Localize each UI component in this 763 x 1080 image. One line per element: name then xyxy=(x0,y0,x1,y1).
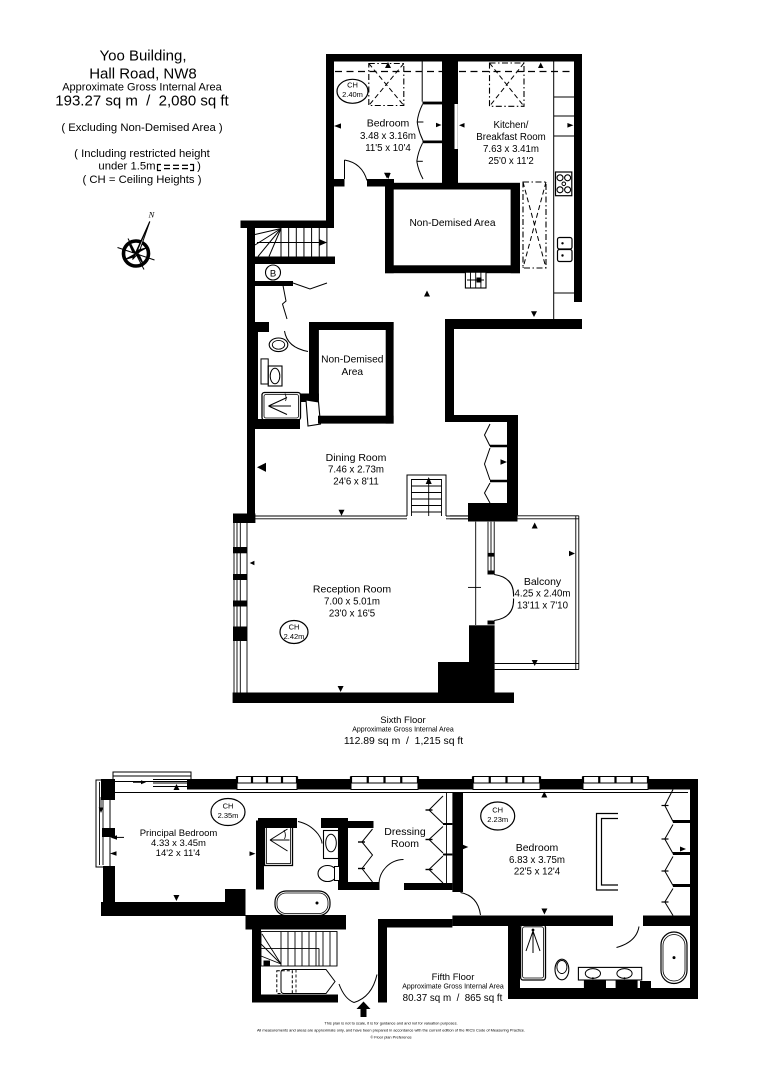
svg-text:3.48 x 3.16m: 3.48 x 3.16m xyxy=(360,131,416,142)
svg-text:4.25 x 2.40m: 4.25 x 2.40m xyxy=(514,589,570,600)
svg-text:Yoo Building,: Yoo Building, xyxy=(99,48,186,65)
svg-text:All measurements and areas are: All measurements and areas are approxima… xyxy=(257,1028,525,1033)
svg-text:Non-Demised: Non-Demised xyxy=(321,355,384,366)
svg-text:7.63 x 3.41m: 7.63 x 3.41m xyxy=(483,144,539,155)
svg-text:11'5 x 10'4: 11'5 x 10'4 xyxy=(365,143,411,154)
svg-text:CH: CH xyxy=(347,81,358,90)
svg-text:Kitchen/: Kitchen/ xyxy=(493,120,528,131)
svg-text:Reception Room: Reception Room xyxy=(313,584,391,596)
svg-text:80.37 sq m / 865 sq ft: 80.37 sq m / 865 sq ft xyxy=(403,993,503,1004)
svg-text:Breakfast Room: Breakfast Room xyxy=(476,132,545,143)
svg-text:112.89 sq m / 1,215 sq ft: 112.89 sq m / 1,215 sq ft xyxy=(344,736,463,747)
svg-text:13'11 x 7'10: 13'11 x 7'10 xyxy=(517,601,569,612)
svg-text:2.35m: 2.35m xyxy=(218,811,239,820)
svg-text:B: B xyxy=(270,268,276,279)
svg-text:25'0 x 11'2: 25'0 x 11'2 xyxy=(488,156,534,167)
svg-text:Fifth Floor: Fifth Floor xyxy=(432,972,475,983)
svg-text:2.40m: 2.40m xyxy=(342,90,363,99)
svg-text:Bedroom: Bedroom xyxy=(367,118,410,130)
svg-text:14'2 x 11'4: 14'2 x 11'4 xyxy=(156,848,201,859)
svg-text:23'0 x 16'5: 23'0 x 16'5 xyxy=(329,609,375,620)
svg-text:Balcony: Balcony xyxy=(524,576,562,588)
svg-text:Dining Room: Dining Room xyxy=(326,452,387,464)
svg-text:2.42m: 2.42m xyxy=(284,632,305,641)
svg-text:Approximate Gross Internal Are: Approximate Gross Internal Area xyxy=(352,727,454,734)
svg-text:under 1.5m: under 1.5m xyxy=(98,161,155,173)
svg-text:( CH = Ceiling Heights ): ( CH = Ceiling Heights ) xyxy=(83,174,202,186)
svg-text:7.00 x 5.01m: 7.00 x 5.01m xyxy=(324,597,380,608)
svg-text:( Excluding Non-Demised Area ): ( Excluding Non-Demised Area ) xyxy=(61,122,223,134)
svg-text:6.83 x 3.75m: 6.83 x 3.75m xyxy=(509,855,565,866)
svg-text:CH: CH xyxy=(492,806,503,815)
svg-text:CH: CH xyxy=(289,623,300,632)
svg-text:2.23m: 2.23m xyxy=(487,815,508,824)
svg-text:Approximate Gross Internal Are: Approximate Gross Internal Area xyxy=(402,984,504,991)
svg-text:( Including restricted height: ( Including restricted height xyxy=(74,148,210,160)
svg-text:Hall Road, NW8: Hall Road, NW8 xyxy=(89,66,197,83)
svg-text:© Floor plan Preference: © Floor plan Preference xyxy=(370,1035,411,1040)
svg-text:7.46 x 2.73m: 7.46 x 2.73m xyxy=(328,465,384,476)
svg-text:Dressing: Dressing xyxy=(384,826,426,838)
svg-text:Bedroom: Bedroom xyxy=(516,842,559,854)
svg-text:): ) xyxy=(197,161,201,173)
svg-text:Non-Demised Area: Non-Demised Area xyxy=(409,218,495,229)
svg-text:193.27 sq m / 2,080 sq ft: 193.27 sq m / 2,080 sq ft xyxy=(55,93,229,110)
svg-text:Sixth Floor: Sixth Floor xyxy=(380,715,425,726)
svg-text:24'6 x 8'11: 24'6 x 8'11 xyxy=(333,477,379,488)
svg-text:22'5 x 12'4: 22'5 x 12'4 xyxy=(514,867,561,878)
svg-text:Room: Room xyxy=(391,838,419,850)
svg-text:This plan is not to scale, it: This plan is not to scale, it is for gui… xyxy=(324,1021,457,1026)
svg-text:Area: Area xyxy=(342,367,364,378)
svg-text:CH: CH xyxy=(223,802,234,811)
